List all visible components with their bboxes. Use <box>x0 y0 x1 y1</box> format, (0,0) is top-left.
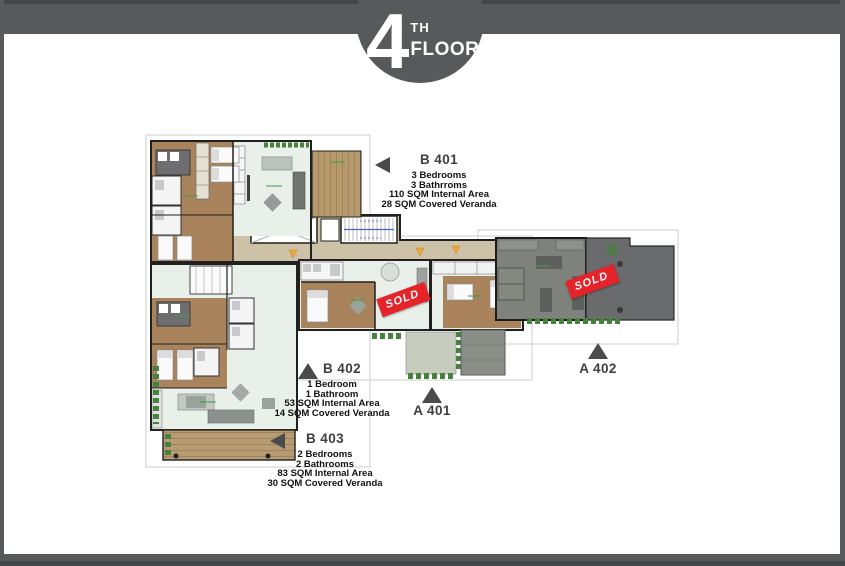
unit-details-b401: 3 Bedrooms 3 Bathrroms 110 SQM Internal … <box>377 171 501 209</box>
unit-title-a401: A 401 <box>404 403 460 418</box>
frame-right-border <box>840 0 845 566</box>
unit-label-a401[interactable]: A 401 <box>404 403 460 418</box>
unit-title-b403: B 403 <box>263 431 387 446</box>
unit-details-b402: 1 Bedroom 1 Bathroom 53 SQM Internal Are… <box>270 380 394 418</box>
floor-badge: 4 TH FLOOR <box>366 6 478 86</box>
frame-bottom-strip <box>0 561 845 566</box>
floor-number: 4 <box>366 6 407 86</box>
unit-details-b403: 2 Bedrooms 2 Bathrooms 83 SQM Internal A… <box>263 450 387 488</box>
floor-ordinal: TH <box>410 20 479 35</box>
unit-title-b401: B 401 <box>377 152 501 167</box>
unit-label-a402[interactable]: A 402 <box>570 361 626 376</box>
unit-label-b402[interactable]: B 402 1 Bedroom 1 Bathroom 53 SQM Intern… <box>270 361 394 418</box>
floor-word: FLOOR <box>410 39 479 61</box>
floor-plan-page: 4 TH FLOOR <box>0 0 845 566</box>
a402-pointer-icon <box>588 343 608 359</box>
frame-left-border <box>0 0 4 566</box>
unit-title-b402: B 402 <box>280 361 404 376</box>
a401-pointer-icon <box>422 387 442 403</box>
unit-title-a402: A 402 <box>570 361 626 376</box>
unit-label-b403[interactable]: B 403 2 Bedrooms 2 Bathrooms 83 SQM Inte… <box>263 431 387 488</box>
staircase <box>341 216 397 243</box>
unit-label-b401[interactable]: B 401 3 Bedrooms 3 Bathrroms 110 SQM Int… <box>377 152 501 209</box>
